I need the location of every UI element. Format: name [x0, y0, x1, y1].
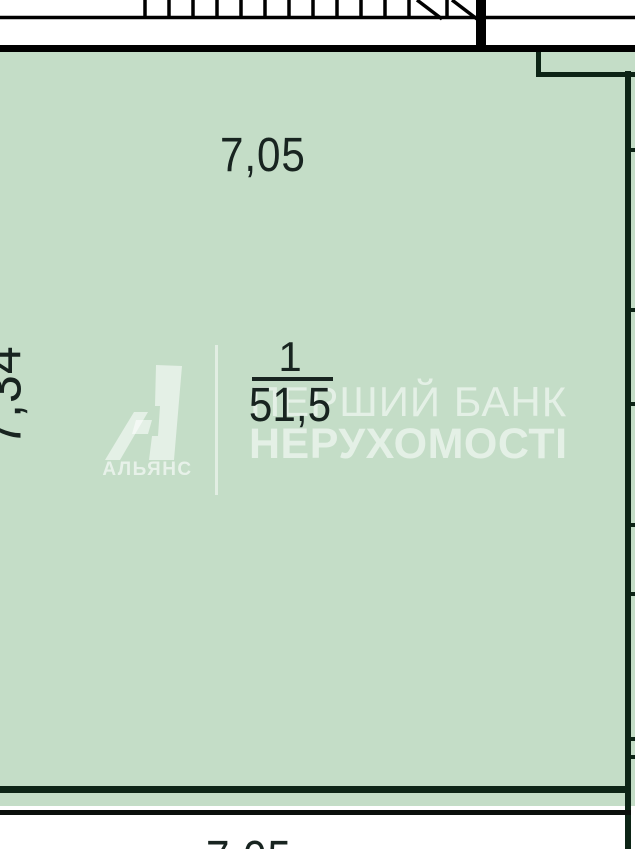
- dimension-bottom-width: 7,05: [206, 835, 292, 849]
- adjacent-wall-tick: [629, 308, 635, 312]
- adjacent-wall-tick: [629, 523, 635, 527]
- adjacent-wall-tick: [629, 592, 635, 596]
- adjacent-wall-tick: [629, 402, 635, 406]
- bottom-wall: [0, 786, 631, 793]
- room-area: 51,5: [246, 382, 334, 430]
- adjacent-wall-tick: [629, 755, 635, 759]
- adjacent-wall-tick: [629, 148, 635, 152]
- shaft-niche-bottom-border: [536, 72, 635, 77]
- top-wall: [0, 45, 635, 52]
- room-number: 1: [240, 336, 340, 378]
- right-wall: [625, 71, 631, 849]
- watermark-divider: [215, 345, 218, 495]
- dimension-top-width: 7,05: [220, 132, 306, 180]
- floor-plan: АЛЬЯНС ПЕРШИЙ БАНК НЕРУХОМОСТІ 7,05 7,34…: [0, 0, 635, 849]
- adjacent-wall-tick: [629, 737, 635, 741]
- alliance-logo-icon: [100, 360, 195, 465]
- dimension-left-height: 7,34: [0, 326, 35, 466]
- bottom-boundary-line: [0, 810, 631, 815]
